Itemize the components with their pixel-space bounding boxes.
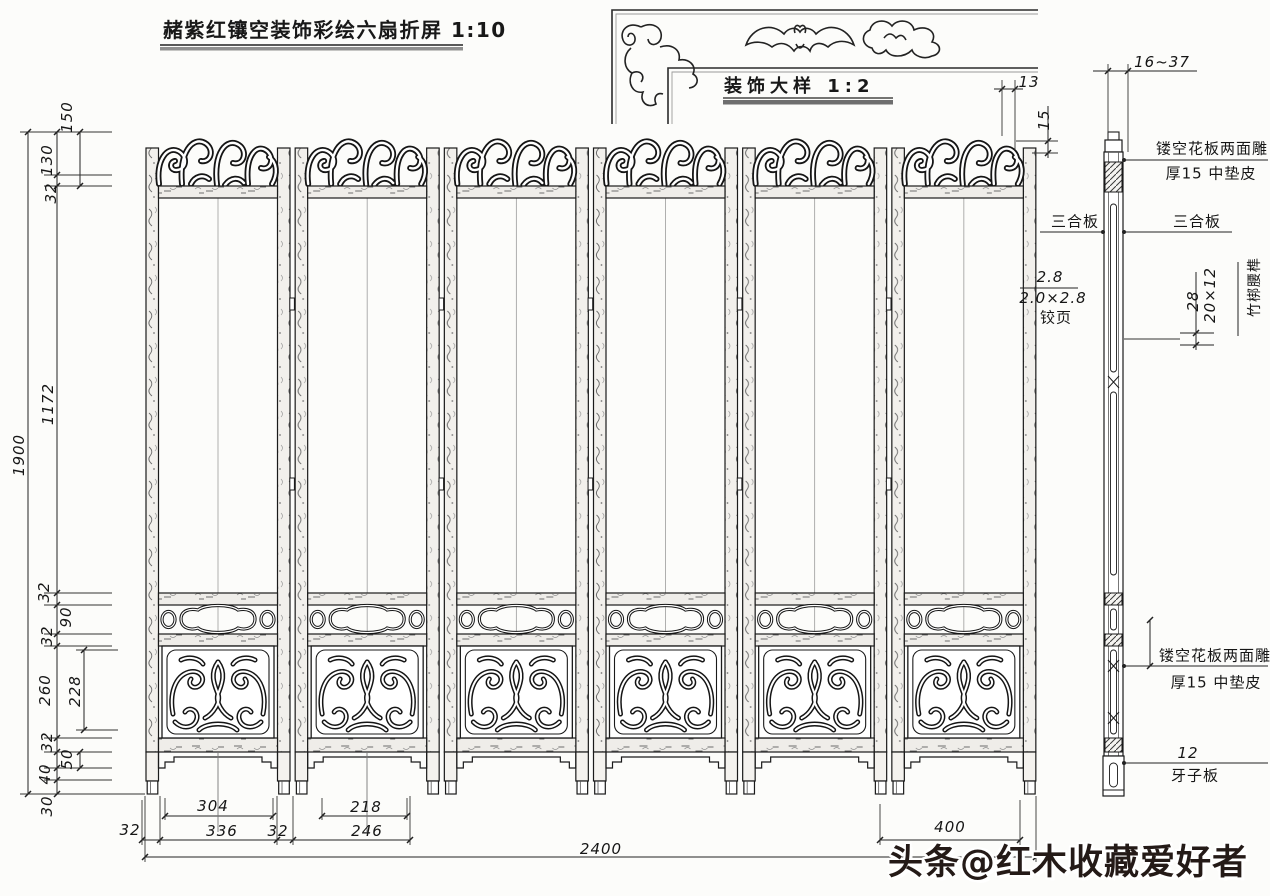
dim-label: 1172 xyxy=(39,383,57,425)
dim-label: 13 xyxy=(1018,73,1039,91)
dim-label: 130 xyxy=(38,144,56,176)
dim-label: 260 xyxy=(36,674,54,706)
annotation-label: 镂空花板两面雕 xyxy=(1159,645,1270,666)
dim-label: 20×12 xyxy=(1201,267,1219,323)
dim-label: 246 xyxy=(351,822,383,840)
dim-label: 15 xyxy=(1035,109,1053,130)
dim-label: 30 xyxy=(38,795,56,816)
annotation-label: 厚15 中垫皮 xyxy=(1166,163,1257,184)
front-elevation xyxy=(146,141,1036,794)
dim-label: 32 xyxy=(35,581,53,602)
dim-label: 32 xyxy=(38,625,56,646)
dim-label: 32 xyxy=(38,731,56,752)
dim-label: 1900 xyxy=(10,434,28,476)
dim-label: 2.8 xyxy=(1037,268,1064,286)
dim-label: 32 xyxy=(267,822,288,840)
cloud-ornament-icon xyxy=(863,21,939,58)
dim-label: 50 xyxy=(58,748,76,769)
annotation-label: 厚15 中垫皮 xyxy=(1171,672,1262,693)
side-elevation xyxy=(1103,132,1124,796)
dim-label: 32 xyxy=(42,182,60,203)
dim-label: 228 xyxy=(66,675,84,707)
dim-label: 12 xyxy=(1177,744,1198,762)
dim-label: 32 xyxy=(119,821,140,839)
dim-label: 2400 xyxy=(580,840,622,858)
annotation-label: 牙子板 xyxy=(1171,765,1219,786)
annotation-label: 竹梆腰榫 xyxy=(1244,257,1264,317)
watermark: 头条@红木收藏爱好者 xyxy=(888,834,1248,885)
dim-label: 28 xyxy=(1184,290,1202,311)
corner-ornament-icon xyxy=(622,25,697,106)
dim-label: 16~37 xyxy=(1134,53,1190,71)
detail-title: 装饰大样 1:2 xyxy=(724,72,875,98)
detail-box xyxy=(612,10,1038,124)
drawing-sheet: 赭紫红镶空装饰彩绘六扇折屏 1:10 装饰大样 1:2 131516~37150… xyxy=(0,0,1270,896)
annotation-label: 三合板 xyxy=(1173,211,1221,232)
dim-label: 150 xyxy=(58,101,76,133)
drawing-title: 赭紫红镶空装饰彩绘六扇折屏 1:10 xyxy=(163,14,507,43)
blueprint-svg xyxy=(0,0,1270,896)
annotation-label: 镂空花板两面雕 xyxy=(1156,138,1268,159)
annotation-label: 三合板 xyxy=(1051,211,1099,232)
dim-label: 336 xyxy=(206,822,238,840)
dim-label: 304 xyxy=(197,797,229,815)
dim-label: 218 xyxy=(350,798,382,816)
annotation-label: 铰页 xyxy=(1040,307,1072,328)
bat-ornament-icon xyxy=(746,25,854,51)
dim-label: 40 xyxy=(36,763,54,784)
dim-label: 2.0×2.8 xyxy=(1019,289,1086,307)
dim-label: 90 xyxy=(57,606,75,627)
